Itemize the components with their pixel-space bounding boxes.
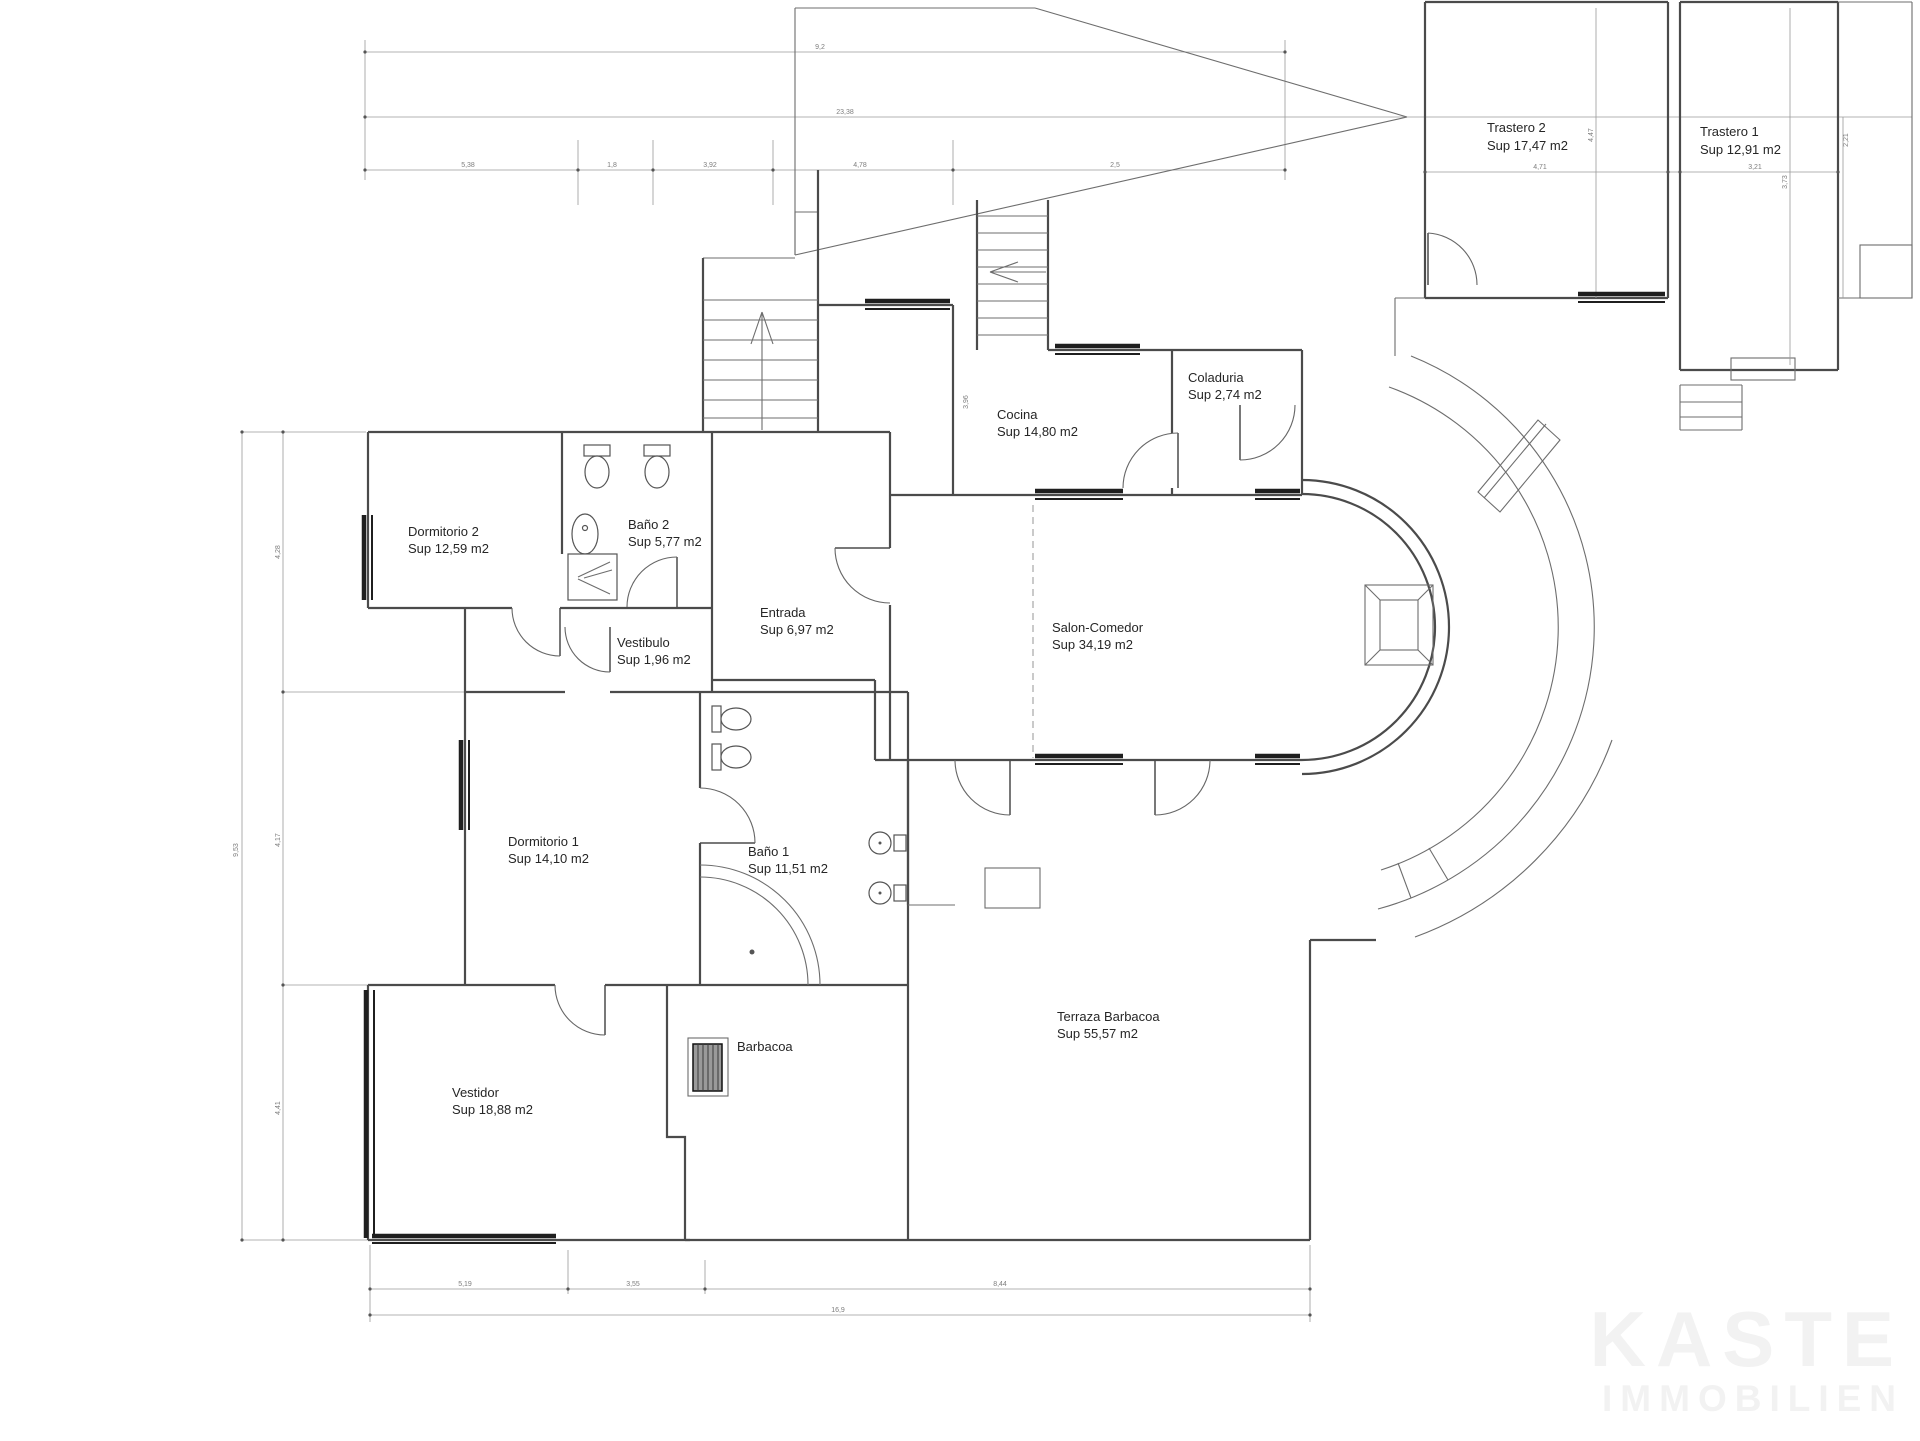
room-area-cocina: Sup 14,80 m2 <box>997 424 1078 439</box>
toilet-icon <box>644 445 670 488</box>
dim-label: 3,73 <box>1782 175 1789 189</box>
dim-label: 4,71 <box>1533 164 1547 171</box>
room-area-bano-2: Sup 5,77 m2 <box>628 534 702 549</box>
dim-label: 3,92 <box>703 162 717 169</box>
room-label-terraza-barbacoa: Terraza Barbacoa <box>1057 1009 1160 1024</box>
room-labels: Trastero 2 Sup 17,47 m2 Trastero 1 Sup 1… <box>408 120 1781 1117</box>
room-label-barbacoa: Barbacoa <box>737 1039 793 1054</box>
roof-projection-lines <box>703 8 1407 258</box>
room-area-vestidor: Sup 18,88 m2 <box>452 1102 533 1117</box>
room-label-coladuria: Coladuria <box>1188 370 1244 385</box>
dim-label: 4,47 <box>1588 128 1595 142</box>
curved-terrace-wall <box>1378 298 1612 937</box>
walls <box>368 305 1376 1240</box>
floor-plan-canvas: 9,2 23,38 5,38 1,8 3,92 4,78 2,5 9,53 4,… <box>0 0 1920 1441</box>
stair-up-arrow-icon <box>751 312 773 430</box>
room-area-bano-1: Sup 11,51 m2 <box>748 861 828 876</box>
room-area-coladuria: Sup 2,74 m2 <box>1188 387 1262 402</box>
trastero-stair <box>1680 385 1742 430</box>
dim-label: 1,8 <box>607 162 617 169</box>
room-label-vestidor: Vestidor <box>452 1085 500 1100</box>
barbecue-icon <box>688 1038 728 1096</box>
shower-icon <box>568 554 617 600</box>
room-area-trastero-2: Sup 17,47 m2 <box>1487 138 1568 153</box>
toilet-icon <box>712 744 751 770</box>
room-label-trastero-2: Trastero 2 <box>1487 120 1546 135</box>
staircase-main <box>703 170 818 432</box>
watermark-line2: IMMOBILIEN <box>1590 1380 1904 1417</box>
trastero-block: 4,71 3,21 4,47 3,73 2,21 <box>1423 2 1912 430</box>
shower-tray-icon <box>700 865 820 985</box>
dim-label: 2,21 <box>1843 133 1850 147</box>
room-label-entrada: Entrada <box>760 605 806 620</box>
room-area-salon-comedor: Sup 34,19 m2 <box>1052 637 1133 652</box>
terrace-step <box>985 868 1040 908</box>
room-label-dormitorio-2: Dormitorio 2 <box>408 524 479 539</box>
dim-label: 4,17 <box>275 833 282 847</box>
dim-label: 16,9 <box>831 1307 845 1314</box>
watermark-line1: KASTE <box>1590 1300 1904 1378</box>
staircase-secondary <box>977 200 1048 350</box>
room-label-cocina: Cocina <box>997 407 1038 422</box>
dim-label: 4,41 <box>275 1101 282 1115</box>
room-area-dormitorio-1: Sup 14,10 m2 <box>508 851 589 866</box>
dim-label: 3,96 <box>963 395 970 409</box>
dim-label: 8,44 <box>993 1281 1007 1288</box>
bidet-icon <box>869 882 906 904</box>
dim-label: 5,38 <box>461 162 475 169</box>
room-area-trastero-1: Sup 12,91 m2 <box>1700 142 1781 157</box>
dim-label: 4,78 <box>853 162 867 169</box>
room-area-entrada: Sup 6,97 m2 <box>760 622 834 637</box>
dim-label: 4,28 <box>275 545 282 559</box>
room-label-trastero-1: Trastero 1 <box>1700 124 1759 139</box>
dim-label: 2,5 <box>1110 162 1120 169</box>
dim-label: 3,55 <box>626 1281 640 1288</box>
room-label-dormitorio-1: Dormitorio 1 <box>508 834 579 849</box>
dim-label: 5,19 <box>458 1281 472 1288</box>
floor-plan-page: 9,2 23,38 5,38 1,8 3,92 4,78 2,5 9,53 4,… <box>0 0 1920 1441</box>
watermark-logo: KASTE IMMOBILIEN <box>1590 1300 1904 1417</box>
dim-label: 23,38 <box>836 109 854 116</box>
room-label-vestibulo: Vestibulo <box>617 635 670 650</box>
terrace-ramp <box>1478 420 1560 512</box>
toilet-icon <box>584 445 610 488</box>
dim-label: 3,21 <box>1748 164 1762 171</box>
room-label-bano-2: Baño 2 <box>628 517 669 532</box>
dim-label: 9,2 <box>815 44 825 51</box>
sink-icon <box>572 514 598 554</box>
room-area-dormitorio-2: Sup 12,59 m2 <box>408 541 489 556</box>
room-area-terraza-barbacoa: Sup 55,57 m2 <box>1057 1026 1138 1041</box>
toilet-icon <box>712 706 751 732</box>
sink-icon <box>869 832 906 854</box>
stair-left-arrow-icon <box>990 262 1046 282</box>
room-label-salon-comedor: Salon-Comedor <box>1052 620 1144 635</box>
dimension-lines-bottom: 5,19 3,55 8,44 16,9 <box>368 1245 1311 1322</box>
fireplace-icon <box>1365 585 1433 665</box>
room-area-vestibulo: Sup 1,96 m2 <box>617 652 691 667</box>
doors <box>512 233 1477 1035</box>
dim-label: 9,53 <box>233 843 240 857</box>
room-label-bano-1: Baño 1 <box>748 844 789 859</box>
